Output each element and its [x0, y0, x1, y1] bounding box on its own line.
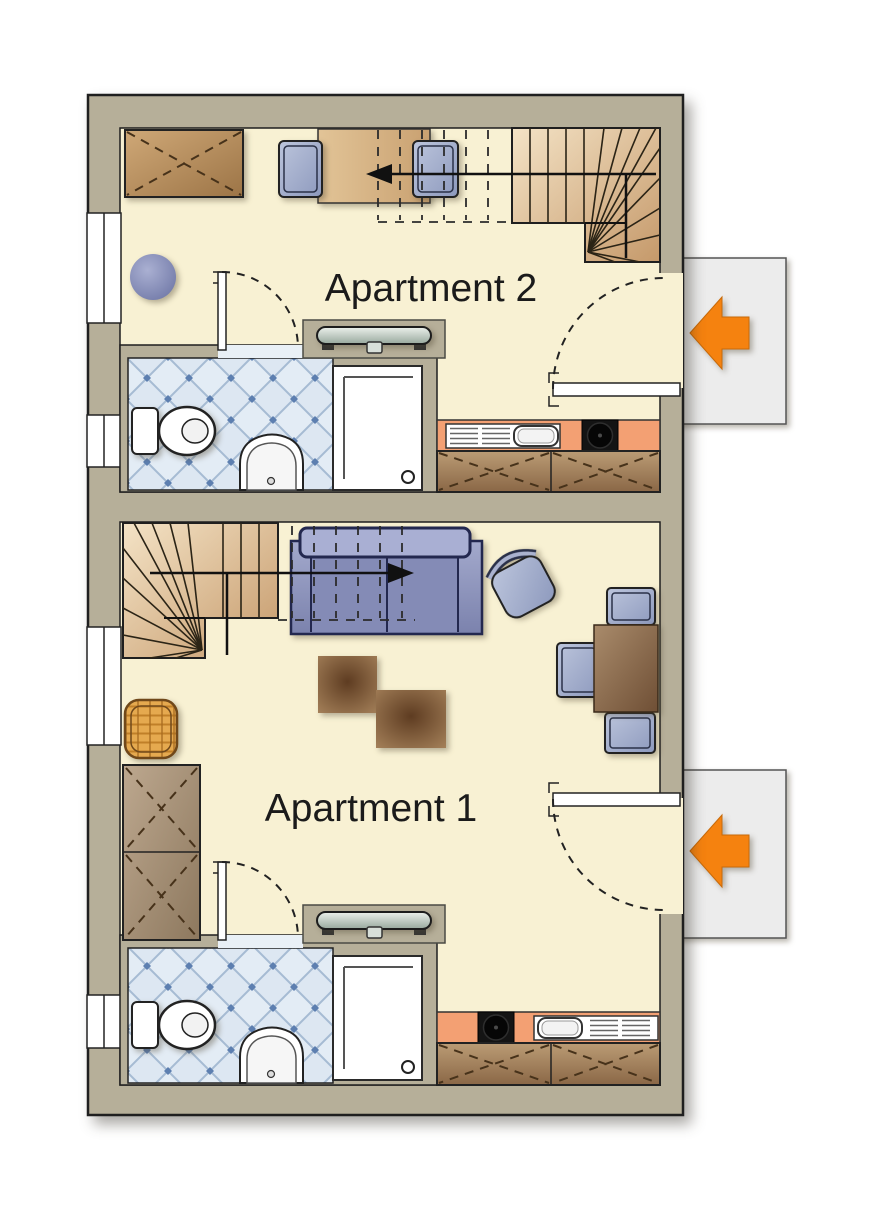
apartment1-radiator-icon — [303, 905, 445, 943]
window-apartment2-living — [87, 213, 121, 323]
apartment2-desk-chair-right — [413, 141, 458, 197]
apartment1-dining-table-top — [594, 625, 658, 712]
window-apartment2-bath — [87, 415, 121, 467]
apartment2-kitchen-cabinets — [437, 451, 660, 492]
apartment2-radiator-icon — [303, 320, 445, 358]
apartment1-wardrobe — [123, 765, 200, 940]
apartment2-round-table — [130, 254, 176, 300]
apartment1-coffee-table-1 — [318, 656, 377, 713]
apartment1-bathroom-door-opening — [218, 935, 303, 948]
apartment-1-label: Apartment 1 — [265, 787, 477, 830]
apartment2-kitchen — [437, 420, 660, 492]
apartment1-laundry-basket — [125, 700, 177, 758]
apartment2-washbasin-icon — [240, 435, 303, 491]
apartment2-shower-drain-icon — [402, 471, 414, 483]
apartment2-kitchen-sink-icon — [446, 424, 560, 448]
apartment1-kitchen-sink-icon — [534, 1016, 658, 1040]
apartment1-washbasin-icon — [240, 1028, 303, 1084]
apartment1-toilet-icon — [132, 1001, 215, 1049]
apartment1-dining-chair-bottom — [605, 713, 655, 753]
apartment2-entrance-opening — [658, 273, 683, 388]
apartment-2-label: Apartment 2 — [325, 267, 537, 310]
apartment2-bathroom — [120, 345, 437, 492]
apartment1-kitchen — [437, 1012, 660, 1085]
window-apartment1-living — [87, 627, 121, 745]
apartment1-sofa-bed — [291, 528, 482, 634]
apartment1-bathroom — [120, 935, 437, 1085]
apartment1-shower-drain-icon — [402, 1061, 414, 1073]
apartment1-kitchen-cabinets — [437, 1043, 660, 1085]
floor-plan: Apartment 2 Apartment 1 — [0, 0, 889, 1225]
apartment1-entrance-opening — [658, 798, 683, 914]
apartment1-dining-chair-top — [607, 588, 655, 625]
apartment2-toilet-icon — [132, 407, 215, 455]
window-apartment1-bath — [87, 995, 121, 1048]
apartment2-sideboard — [125, 130, 243, 197]
apartment2-bathroom-door-opening — [218, 345, 303, 358]
apartment1-cooktop-icon — [478, 1012, 514, 1043]
apartment2-desk-chair-left — [279, 141, 322, 197]
apartment2-cooktop-icon — [582, 420, 618, 451]
apartment1-coffee-table-2 — [376, 690, 446, 748]
